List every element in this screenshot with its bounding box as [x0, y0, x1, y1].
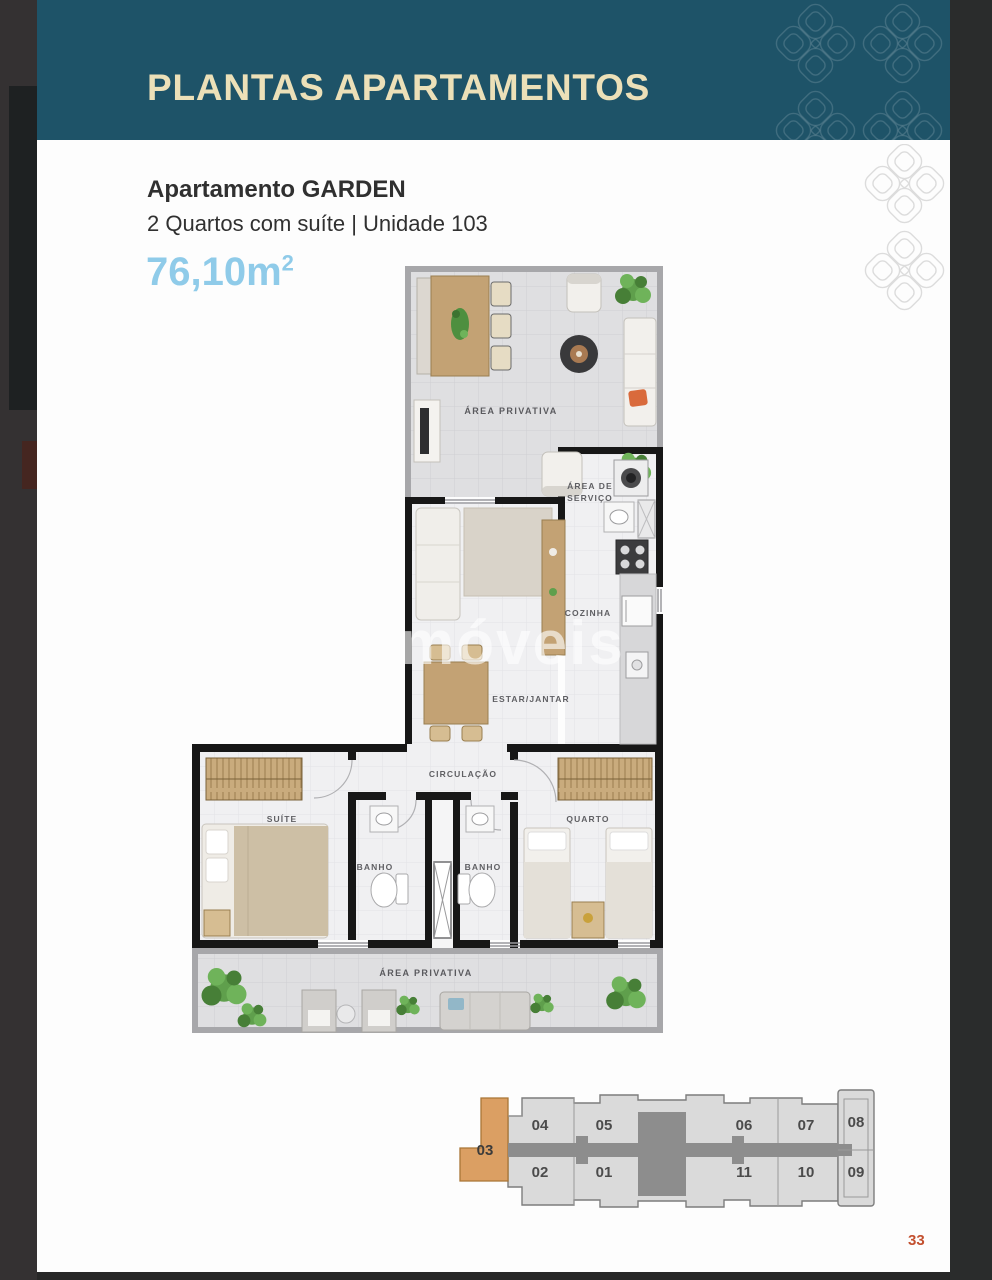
right-backdrop [950, 0, 992, 1280]
label-banho-2: BANHO [465, 862, 502, 872]
label-area-servico-2: SERVIÇO [567, 493, 613, 503]
keyplan-unit-03: 03 [477, 1142, 494, 1159]
label-area-privativa-bottom: ÁREA PRIVATIVA [379, 968, 472, 978]
terrace-dining-set [417, 276, 511, 376]
keyplan-unit-02: 02 [532, 1164, 549, 1181]
label-area-privativa-top: ÁREA PRIVATIVA [464, 406, 557, 416]
label-circulacao: CIRCULAÇÃO [429, 769, 497, 779]
keyplan-unit-08: 08 [848, 1114, 865, 1131]
header-flower-pattern [772, 0, 946, 140]
left-backdrop-panel [9, 86, 37, 410]
keyplan-unit-06: 06 [736, 1117, 753, 1134]
apartment-title: Apartamento GARDEN [147, 176, 406, 204]
label-suite: SUÍTE [267, 814, 298, 824]
label-area-servico-1: ÁREA DE [567, 481, 613, 491]
page-number: 33 [908, 1232, 925, 1249]
watermark: móveis [399, 609, 625, 678]
keyplan-unit-07: 07 [798, 1117, 815, 1134]
side-flower-pattern [861, 140, 948, 318]
floor-plan: ÁREA PRIVATIVA ESTAR/JANTAR [190, 262, 666, 1037]
label-quarto: QUARTO [566, 814, 609, 824]
keyplan-unit-03-highlight [460, 1098, 508, 1181]
hall-opening [407, 744, 507, 752]
keyplan-unit-04: 04 [532, 1117, 549, 1134]
shaft [432, 800, 453, 948]
label-estar-jantar: ESTAR/JANTAR [492, 694, 570, 704]
page-title: PLANTAS APARTAMENTOS [147, 67, 650, 109]
keyplan-unit-01: 01 [596, 1164, 613, 1181]
label-banho-1: BANHO [357, 862, 394, 872]
key-plan: 03 04 05 06 07 08 02 01 11 10 09 [456, 1086, 888, 1218]
keyplan-unit-11: 11 [736, 1164, 752, 1181]
keyplan-unit-10: 10 [798, 1164, 815, 1181]
screen: PLANTAS APARTAMENTOS [0, 0, 992, 1280]
keyplan-unit-09: 09 [848, 1164, 865, 1181]
keyplan-unit-05: 05 [596, 1117, 613, 1134]
left-backdrop-accent [22, 441, 37, 489]
apartment-subtitle: 2 Quartos com suíte | Unidade 103 [147, 211, 488, 237]
